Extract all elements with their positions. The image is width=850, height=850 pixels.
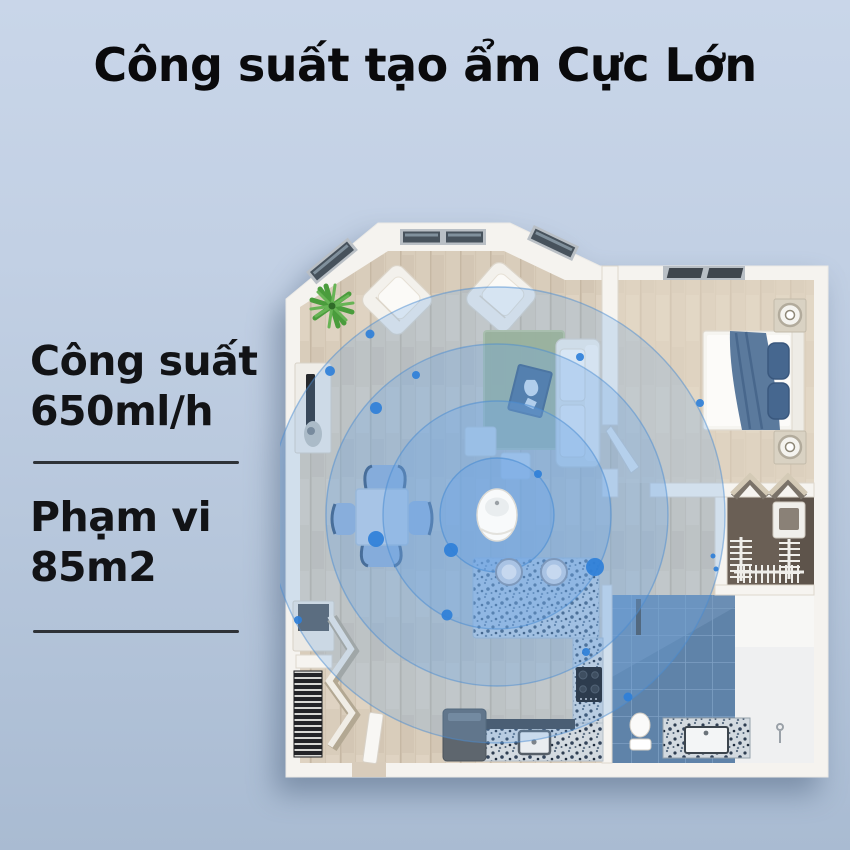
mist-dot (711, 554, 716, 559)
spec-capacity: Công suất 650ml/h (30, 336, 257, 436)
mist-dot (442, 610, 453, 621)
humidifier (477, 489, 517, 541)
spec-capacity-underline (33, 461, 239, 464)
mist-dot (444, 543, 458, 557)
spec-coverage-value: 85m2 (30, 542, 211, 592)
mist-dot (714, 567, 719, 572)
mist-dot (370, 402, 382, 414)
spec-coverage-underline (33, 630, 239, 633)
bedroom-window (663, 266, 745, 280)
floor-plan-svg (280, 203, 840, 795)
mist-dot (576, 353, 584, 361)
pillow (768, 343, 789, 379)
stool (541, 559, 567, 585)
page-title: Công suất tạo ẩm Cực Lớn (0, 38, 850, 92)
mist-dot (696, 399, 704, 407)
mist-dot (412, 371, 420, 379)
mist-dot (582, 648, 590, 656)
bay-window-top (400, 229, 486, 245)
mist-dot (294, 616, 302, 624)
shoe-shelf (294, 671, 322, 757)
bathroom-vanity (663, 718, 750, 758)
spec-capacity-label: Công suất (30, 336, 257, 386)
stool (496, 559, 522, 585)
toilet (630, 713, 651, 750)
mist-dot (368, 531, 384, 547)
mist-dot (586, 558, 604, 576)
entry-door-gap (352, 762, 386, 777)
nightstand (774, 431, 806, 464)
spec-coverage: Phạm vi 85m2 (30, 492, 211, 592)
mist-dot (366, 330, 375, 339)
pillow (768, 383, 789, 419)
closet-drawer-unit (773, 502, 805, 538)
mist-dot (325, 366, 335, 376)
nightstand (774, 299, 806, 332)
spec-coverage-label: Phạm vi (30, 492, 211, 542)
page-background: { "title": "Công suất tạo ẩm Cực Lớn", "… (0, 0, 850, 850)
mist-dot (624, 693, 633, 702)
mist-dot (534, 470, 542, 478)
floor-plan (280, 203, 840, 795)
spec-capacity-value: 650ml/h (30, 386, 257, 436)
bed (703, 327, 804, 434)
